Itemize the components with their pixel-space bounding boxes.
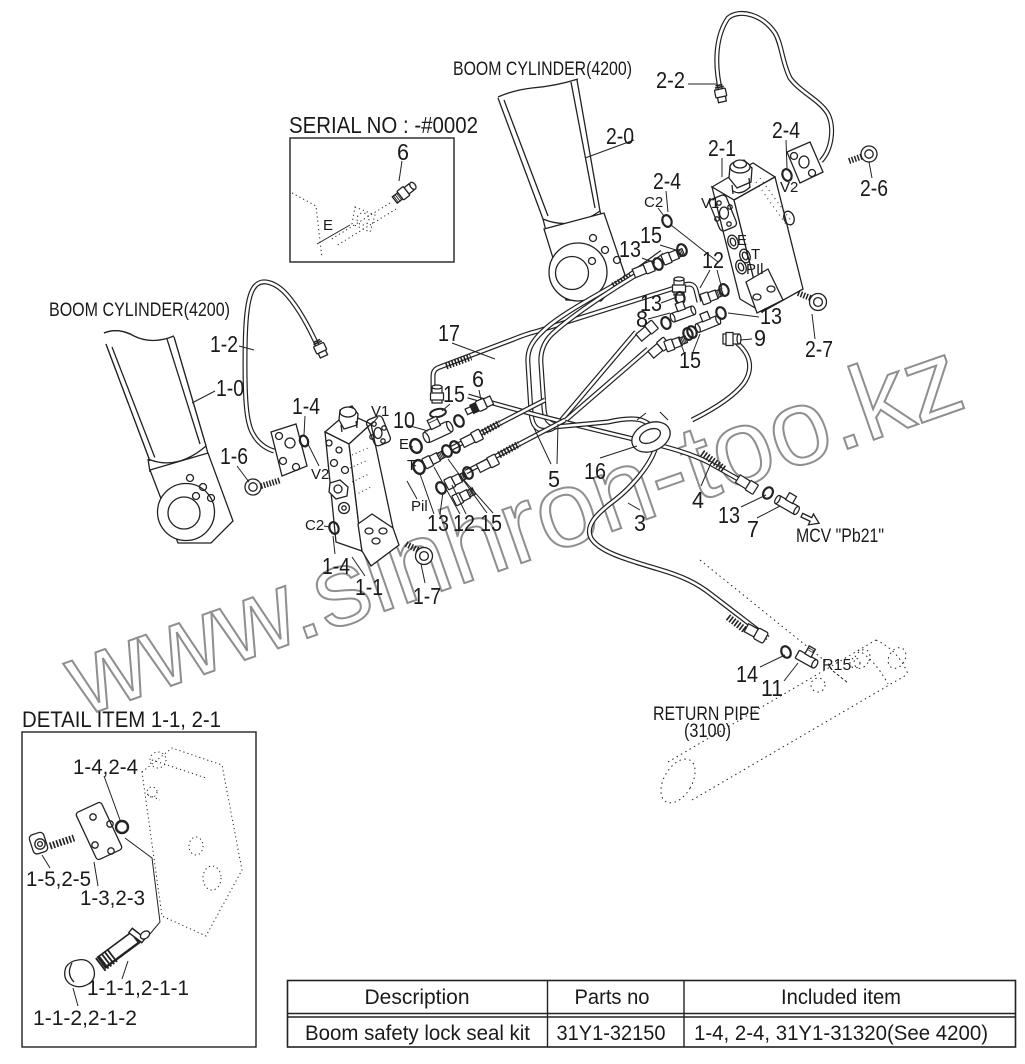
svg-text:13: 13 [427, 510, 449, 536]
svg-text:10: 10 [393, 407, 415, 433]
svg-text:6: 6 [397, 139, 409, 165]
svg-text:2-4: 2-4 [653, 168, 681, 194]
svg-text:V2: V2 [311, 466, 329, 483]
svg-text:Pil: Pil [411, 498, 428, 515]
svg-text:E: E [399, 436, 409, 453]
svg-text:1-6: 1-6 [220, 443, 248, 469]
svg-text:Parts no: Parts no [575, 985, 650, 1009]
svg-text:13: 13 [619, 236, 641, 262]
svg-text:1-1: 1-1 [355, 574, 383, 600]
svg-text:PIl: PIl [746, 261, 764, 278]
svg-text:2-2: 2-2 [656, 67, 685, 93]
svg-text:E: E [737, 232, 747, 249]
svg-text:1-2: 1-2 [210, 331, 238, 357]
svg-text:Boom safety lock seal kit: Boom safety lock seal kit [305, 1021, 530, 1045]
svg-text:17: 17 [438, 320, 460, 346]
svg-text:5: 5 [548, 466, 560, 492]
svg-text:C2: C2 [305, 517, 324, 534]
svg-text:1-0: 1-0 [216, 375, 244, 401]
svg-text:15: 15 [443, 381, 465, 407]
svg-text:9: 9 [754, 325, 766, 351]
svg-text:T: T [407, 457, 416, 474]
svg-text:6: 6 [472, 366, 484, 392]
svg-text:15: 15 [480, 510, 502, 536]
svg-text:15: 15 [679, 347, 701, 373]
svg-text:2-4: 2-4 [772, 117, 800, 143]
svg-text:7: 7 [747, 516, 759, 542]
svg-text:2-7: 2-7 [805, 336, 833, 362]
svg-text:V1: V1 [371, 403, 389, 420]
svg-text:1-7: 1-7 [413, 583, 441, 609]
svg-text:13: 13 [718, 502, 740, 528]
svg-text:12: 12 [453, 510, 475, 536]
svg-text:14: 14 [736, 661, 758, 687]
svg-text:SERIAL NO : -#0002: SERIAL NO : -#0002 [289, 112, 478, 138]
svg-text:2-0: 2-0 [606, 123, 634, 149]
svg-text:V2: V2 [780, 179, 798, 196]
svg-text:1-1-1,2-1-1: 1-1-1,2-1-1 [87, 977, 189, 1000]
svg-text:R15: R15 [822, 657, 851, 674]
svg-text:1-4: 1-4 [322, 553, 350, 579]
svg-text:2-1: 2-1 [708, 135, 736, 161]
svg-text:31Y1-32150: 31Y1-32150 [557, 1021, 666, 1045]
svg-text:MCV "Pb21": MCV "Pb21" [796, 526, 884, 547]
svg-text:DETAIL ITEM 1-1, 2-1: DETAIL ITEM 1-1, 2-1 [22, 707, 221, 732]
svg-text:8: 8 [636, 306, 648, 332]
svg-text:(3100): (3100) [684, 721, 731, 742]
svg-text:3: 3 [634, 510, 646, 536]
svg-text:V1: V1 [701, 195, 719, 212]
svg-text:16: 16 [584, 458, 606, 484]
svg-text:1-3,2-3: 1-3,2-3 [80, 887, 145, 910]
svg-text:15: 15 [640, 222, 662, 248]
svg-text:BOOM CYLINDER(4200): BOOM CYLINDER(4200) [49, 300, 230, 321]
svg-text:BOOM CYLINDER(4200): BOOM CYLINDER(4200) [453, 59, 632, 80]
svg-text:C2: C2 [644, 194, 663, 211]
svg-text:2-6: 2-6 [860, 175, 888, 201]
svg-text:1-4, 2-4, 31Y1-31320(See 4200): 1-4, 2-4, 31Y1-31320(See 4200) [694, 1021, 988, 1045]
svg-text:1-4,2-4: 1-4,2-4 [73, 756, 138, 779]
svg-text:1-1-2,2-1-2: 1-1-2,2-1-2 [33, 1007, 137, 1030]
svg-text:11: 11 [761, 675, 783, 701]
svg-text:1-4: 1-4 [292, 393, 320, 419]
svg-text:4: 4 [692, 487, 704, 513]
svg-text:Description: Description [365, 985, 470, 1009]
svg-text:E: E [323, 217, 333, 234]
svg-text:12: 12 [702, 247, 724, 273]
svg-text:Included item: Included item [781, 985, 901, 1009]
